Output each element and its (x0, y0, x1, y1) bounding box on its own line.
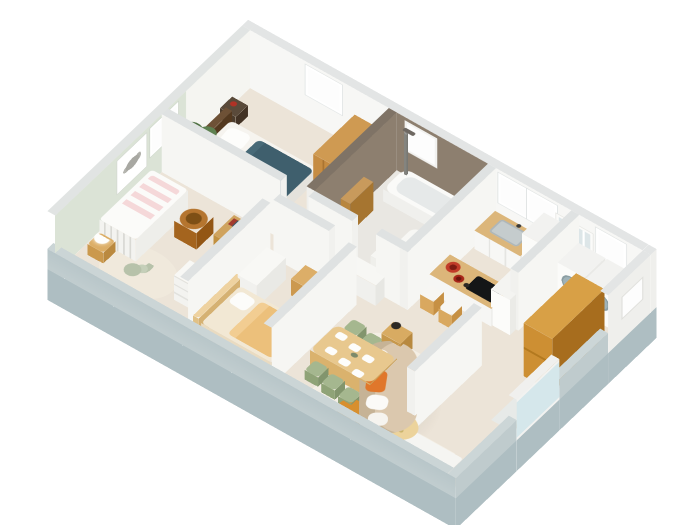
se-small-window (621, 276, 643, 320)
sofa-pillow-white-2 (364, 394, 389, 411)
floorplan-render-stage (0, 0, 700, 525)
wall-kitchen-west-end (400, 248, 408, 310)
